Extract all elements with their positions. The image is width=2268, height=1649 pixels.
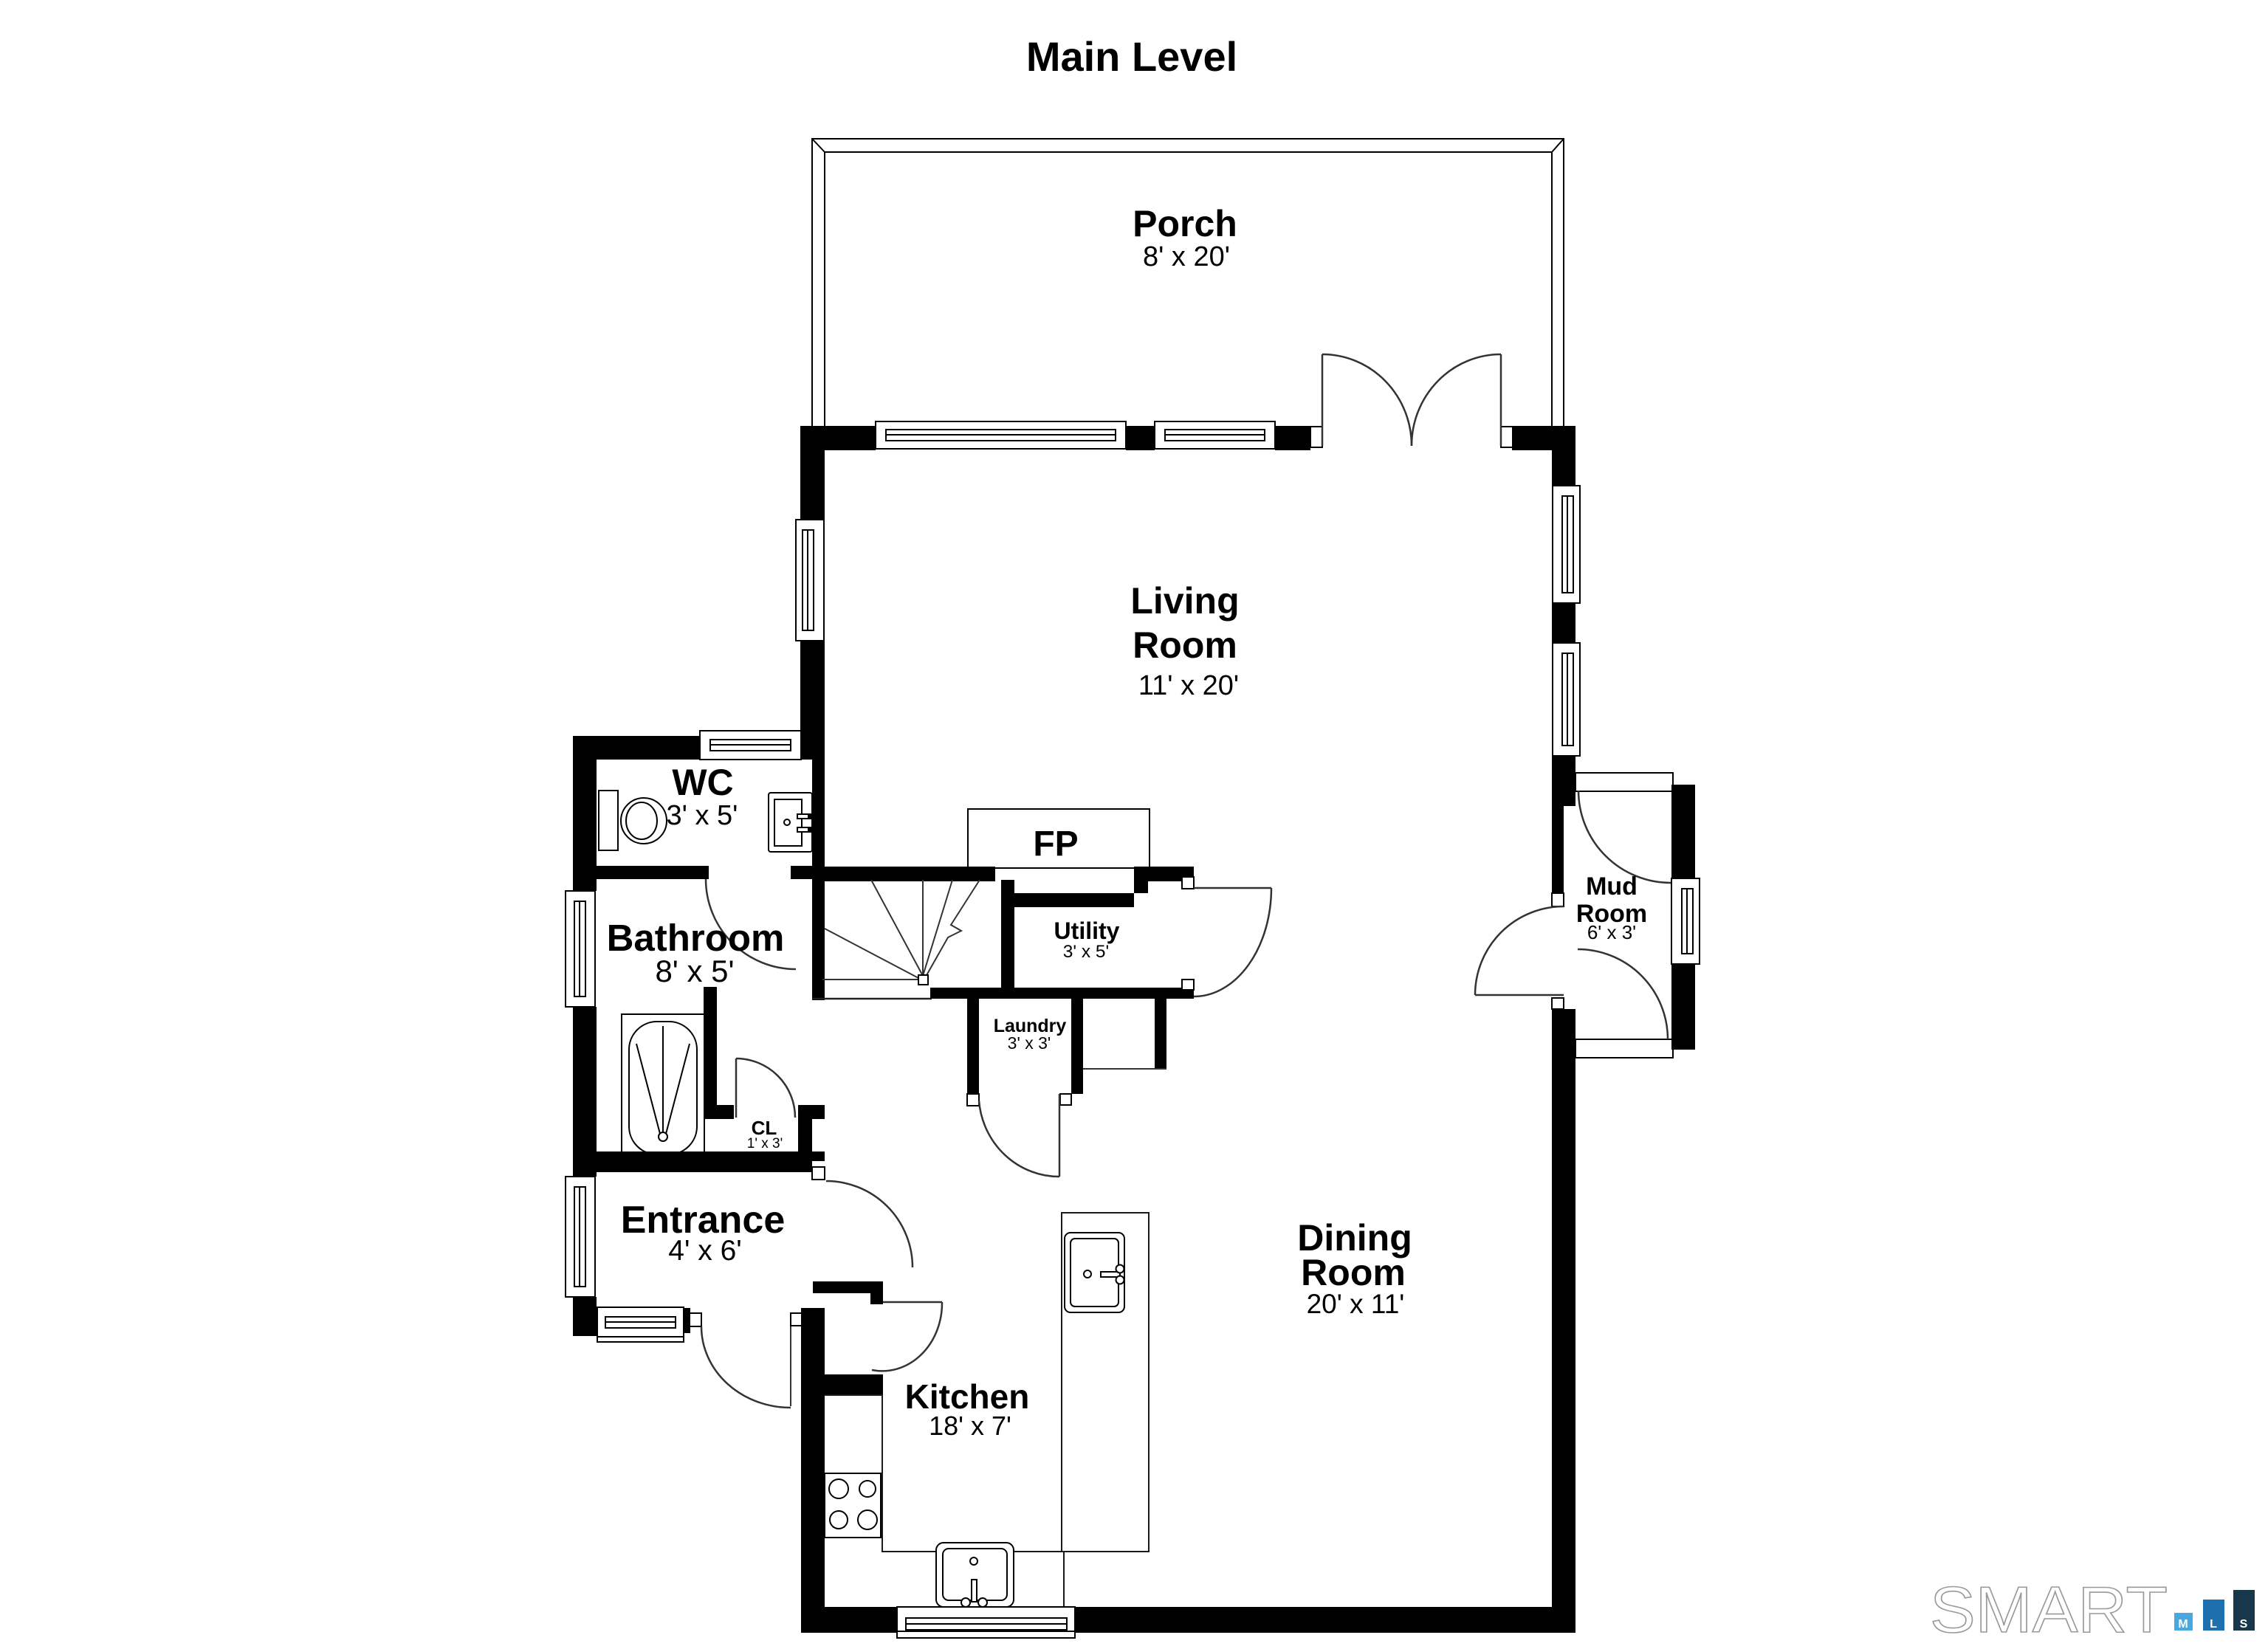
svg-text:3' x 5': 3' x 5' (1063, 942, 1109, 962)
svg-text:3' x 5': 3' x 5' (667, 800, 738, 831)
svg-text:SMART: SMART (1930, 1573, 2168, 1646)
svg-text:3' x 3': 3' x 3' (1008, 1033, 1051, 1053)
svg-text:Living: Living (1130, 580, 1239, 622)
svg-text:Utility: Utility (1054, 918, 1120, 944)
svg-text:WC: WC (672, 762, 733, 803)
svg-text:6' x 3': 6' x 3' (1587, 921, 1636, 943)
svg-text:1' x 3': 1' x 3' (747, 1136, 783, 1151)
svg-text:Main Level: Main Level (1026, 33, 1237, 80)
svg-text:Porch: Porch (1133, 203, 1237, 244)
svg-text:Mud: Mud (1586, 872, 1638, 901)
svg-text:20' x 11': 20' x 11' (1307, 1289, 1405, 1319)
svg-text:Room: Room (1301, 1252, 1406, 1293)
svg-text:8' x 5': 8' x 5' (655, 954, 734, 988)
svg-text:4' x 6': 4' x 6' (668, 1235, 741, 1267)
svg-text:M: M (2178, 1618, 2188, 1631)
svg-text:FP: FP (1033, 824, 1078, 864)
svg-text:11' x 20': 11' x 20' (1138, 670, 1239, 701)
svg-text:8' x 20': 8' x 20' (1143, 241, 1230, 272)
svg-text:L: L (2210, 1618, 2217, 1631)
svg-text:18' x 7': 18' x 7' (929, 1411, 1011, 1441)
svg-text:S: S (2240, 1618, 2248, 1631)
svg-text:Bathroom: Bathroom (607, 917, 785, 959)
svg-text:Room: Room (1133, 624, 1237, 666)
